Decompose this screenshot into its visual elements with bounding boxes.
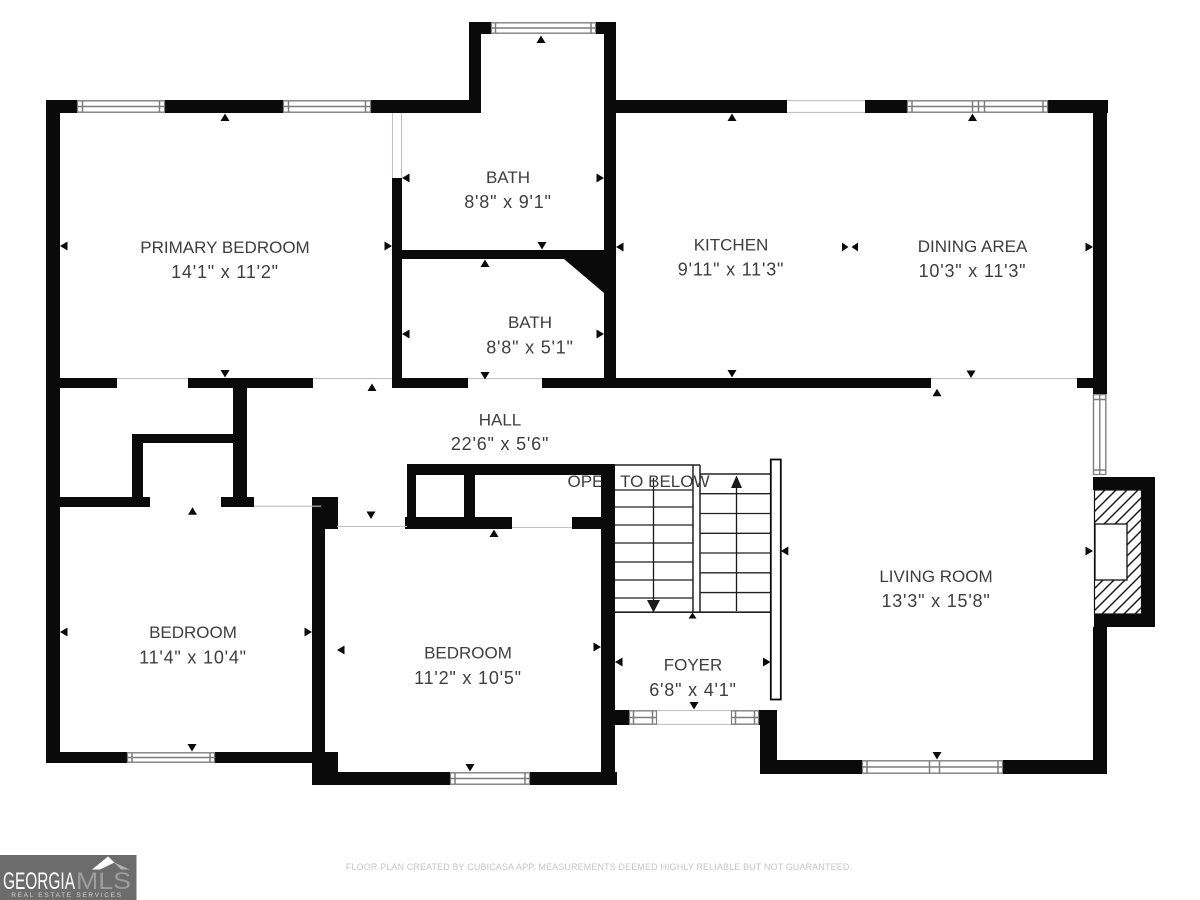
svg-text:14'1" x 11'2": 14'1" x 11'2" (171, 262, 279, 282)
svg-text:KITCHEN: KITCHEN (694, 236, 769, 255)
svg-text:MLS: MLS (76, 868, 131, 895)
svg-text:8'8" x 5'1": 8'8" x 5'1" (486, 338, 574, 358)
svg-text:BEDROOM: BEDROOM (149, 623, 237, 642)
svg-text:11'4" x 10'4": 11'4" x 10'4" (139, 648, 247, 668)
svg-text:LIVING ROOM: LIVING ROOM (879, 567, 992, 586)
svg-text:8'8" x 9'1": 8'8" x 9'1" (464, 192, 552, 212)
svg-text:6'8" x 4'1": 6'8" x 4'1" (649, 680, 737, 700)
svg-text:10'3" x 11'3": 10'3" x 11'3" (919, 261, 1027, 281)
svg-text:HALL: HALL (479, 411, 522, 430)
svg-text:FOYER: FOYER (664, 656, 723, 675)
svg-text:REAL ESTATE SERVICES: REAL ESTATE SERVICES (11, 892, 123, 899)
svg-text:13'3" x 15'8": 13'3" x 15'8" (881, 591, 990, 611)
svg-text:BEDROOM: BEDROOM (424, 644, 512, 663)
svg-text:11'2" x 10'5": 11'2" x 10'5" (414, 668, 522, 688)
svg-text:PRIMARY BEDROOM: PRIMARY BEDROOM (140, 238, 309, 257)
svg-text:22'6" x 5'6": 22'6" x 5'6" (451, 434, 549, 454)
svg-text:FLOOR PLAN CREATED BY CUBICASA: FLOOR PLAN CREATED BY CUBICASA APP. MEAS… (346, 862, 852, 872)
svg-text:BATH: BATH (508, 313, 552, 332)
svg-text:BATH: BATH (486, 168, 530, 187)
svg-text:OPEN TO BELOW: OPEN TO BELOW (567, 472, 709, 491)
svg-text:9'11" x 11'3": 9'11" x 11'3" (678, 260, 784, 280)
svg-text:GEORGIA: GEORGIA (3, 868, 75, 895)
svg-text:DINING AREA: DINING AREA (918, 237, 1028, 256)
